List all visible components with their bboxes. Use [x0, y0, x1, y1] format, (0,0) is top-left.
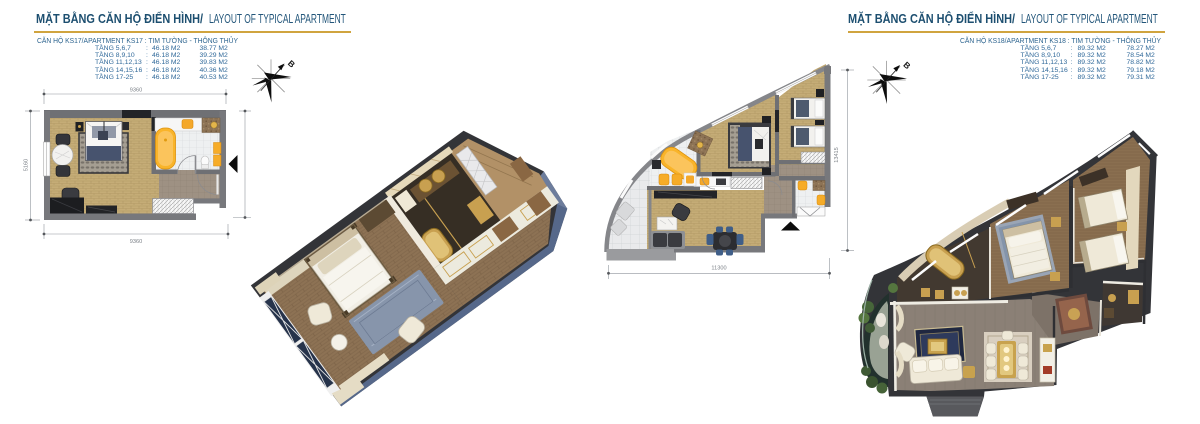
svg-text:9360: 9360: [130, 88, 142, 94]
svg-text:11300: 11300: [711, 266, 726, 272]
svg-text:9360: 9360: [130, 239, 142, 245]
svg-text:13415: 13415: [834, 147, 840, 163]
svg-text:5160: 5160: [24, 159, 30, 171]
svg-text:B: B: [286, 58, 297, 70]
